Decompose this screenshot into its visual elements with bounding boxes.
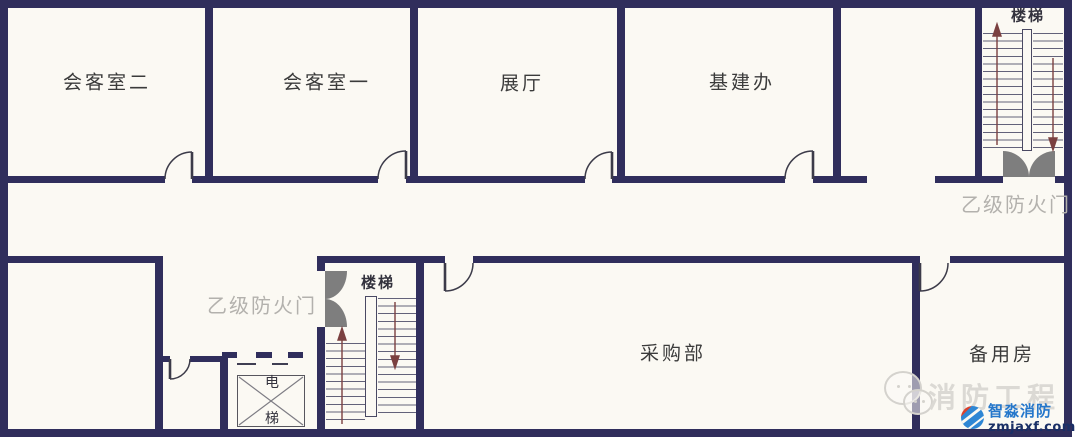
fire-door-label-top-right: 乙级防火门 bbox=[961, 189, 1071, 218]
corridor bbox=[8, 183, 1064, 256]
stair-stringer bbox=[1022, 29, 1032, 151]
stairs-label-top-right: 楼梯 bbox=[1011, 5, 1045, 26]
wall-segment bbox=[406, 176, 585, 183]
wall-segment bbox=[1064, 0, 1072, 437]
wall-segment bbox=[0, 429, 1072, 437]
brand-watermark: 智淼消防 zmjaxf.com bbox=[961, 404, 1076, 434]
wall-segment bbox=[0, 0, 8, 437]
room-label-procurement-dept: 采购部 bbox=[640, 339, 706, 366]
building-area: 电 梯 会客室二 会客室一 展厅 基建办 采购部 备用房 楼梯 楼梯 乙级防火门… bbox=[0, 0, 1072, 437]
wall-segment bbox=[1055, 176, 1064, 183]
wall-segment bbox=[617, 8, 625, 183]
wall-segment bbox=[8, 256, 163, 263]
wall-segment bbox=[950, 256, 1064, 263]
stair-lobby-alcove bbox=[841, 8, 975, 176]
wall-segment bbox=[155, 256, 163, 429]
wall-segment bbox=[935, 176, 1003, 183]
wall-segment bbox=[162, 356, 170, 362]
room-lower-left bbox=[8, 263, 155, 429]
room-label-meeting-room-2: 会客室二 bbox=[63, 68, 151, 95]
brand-logo-icon bbox=[961, 406, 984, 429]
wall-segment bbox=[410, 8, 418, 183]
stair-treads bbox=[378, 298, 416, 419]
elevator-label: 电 梯 bbox=[255, 374, 289, 428]
stair-stringer bbox=[365, 296, 377, 417]
wall-segment bbox=[833, 8, 841, 183]
wall-segment bbox=[318, 256, 445, 263]
stair-treads bbox=[326, 343, 365, 422]
wall-segment bbox=[612, 176, 785, 183]
wall-segment bbox=[192, 176, 378, 183]
room-label-infrastructure-office: 基建办 bbox=[709, 68, 775, 95]
elevator-jamb bbox=[288, 352, 303, 358]
room-label-exhibition-hall: 展厅 bbox=[500, 69, 544, 96]
floor-plan: 电 梯 会客室二 会客室一 展厅 基建办 采购部 备用房 楼梯 楼梯 乙级防火门… bbox=[0, 0, 1080, 439]
wall-segment bbox=[317, 256, 325, 271]
wall-segment bbox=[220, 357, 228, 429]
room-label-spare-room: 备用房 bbox=[969, 340, 1035, 367]
room-small-storage bbox=[163, 363, 220, 429]
wall-segment bbox=[8, 176, 165, 183]
wall-segment bbox=[205, 8, 213, 183]
wall-segment bbox=[317, 327, 325, 429]
wall-segment bbox=[416, 256, 424, 429]
wall-segment bbox=[975, 8, 982, 183]
elevator-label-char: 电 bbox=[265, 376, 279, 390]
room-label-meeting-room-1: 会客室一 bbox=[283, 68, 371, 95]
stair-treads bbox=[1033, 33, 1063, 148]
brand-url: zmjaxf.com bbox=[988, 421, 1076, 434]
stairs-label-middle: 楼梯 bbox=[361, 272, 395, 293]
elevator-jamb bbox=[256, 352, 272, 358]
stair-treads bbox=[983, 33, 1022, 148]
wall-segment bbox=[473, 256, 920, 263]
fire-door-label-middle: 乙级防火门 bbox=[207, 290, 317, 319]
wall-segment bbox=[0, 0, 1072, 8]
brand-name: 智淼消防 bbox=[988, 404, 1076, 419]
elevator-label-char: 梯 bbox=[265, 412, 279, 426]
